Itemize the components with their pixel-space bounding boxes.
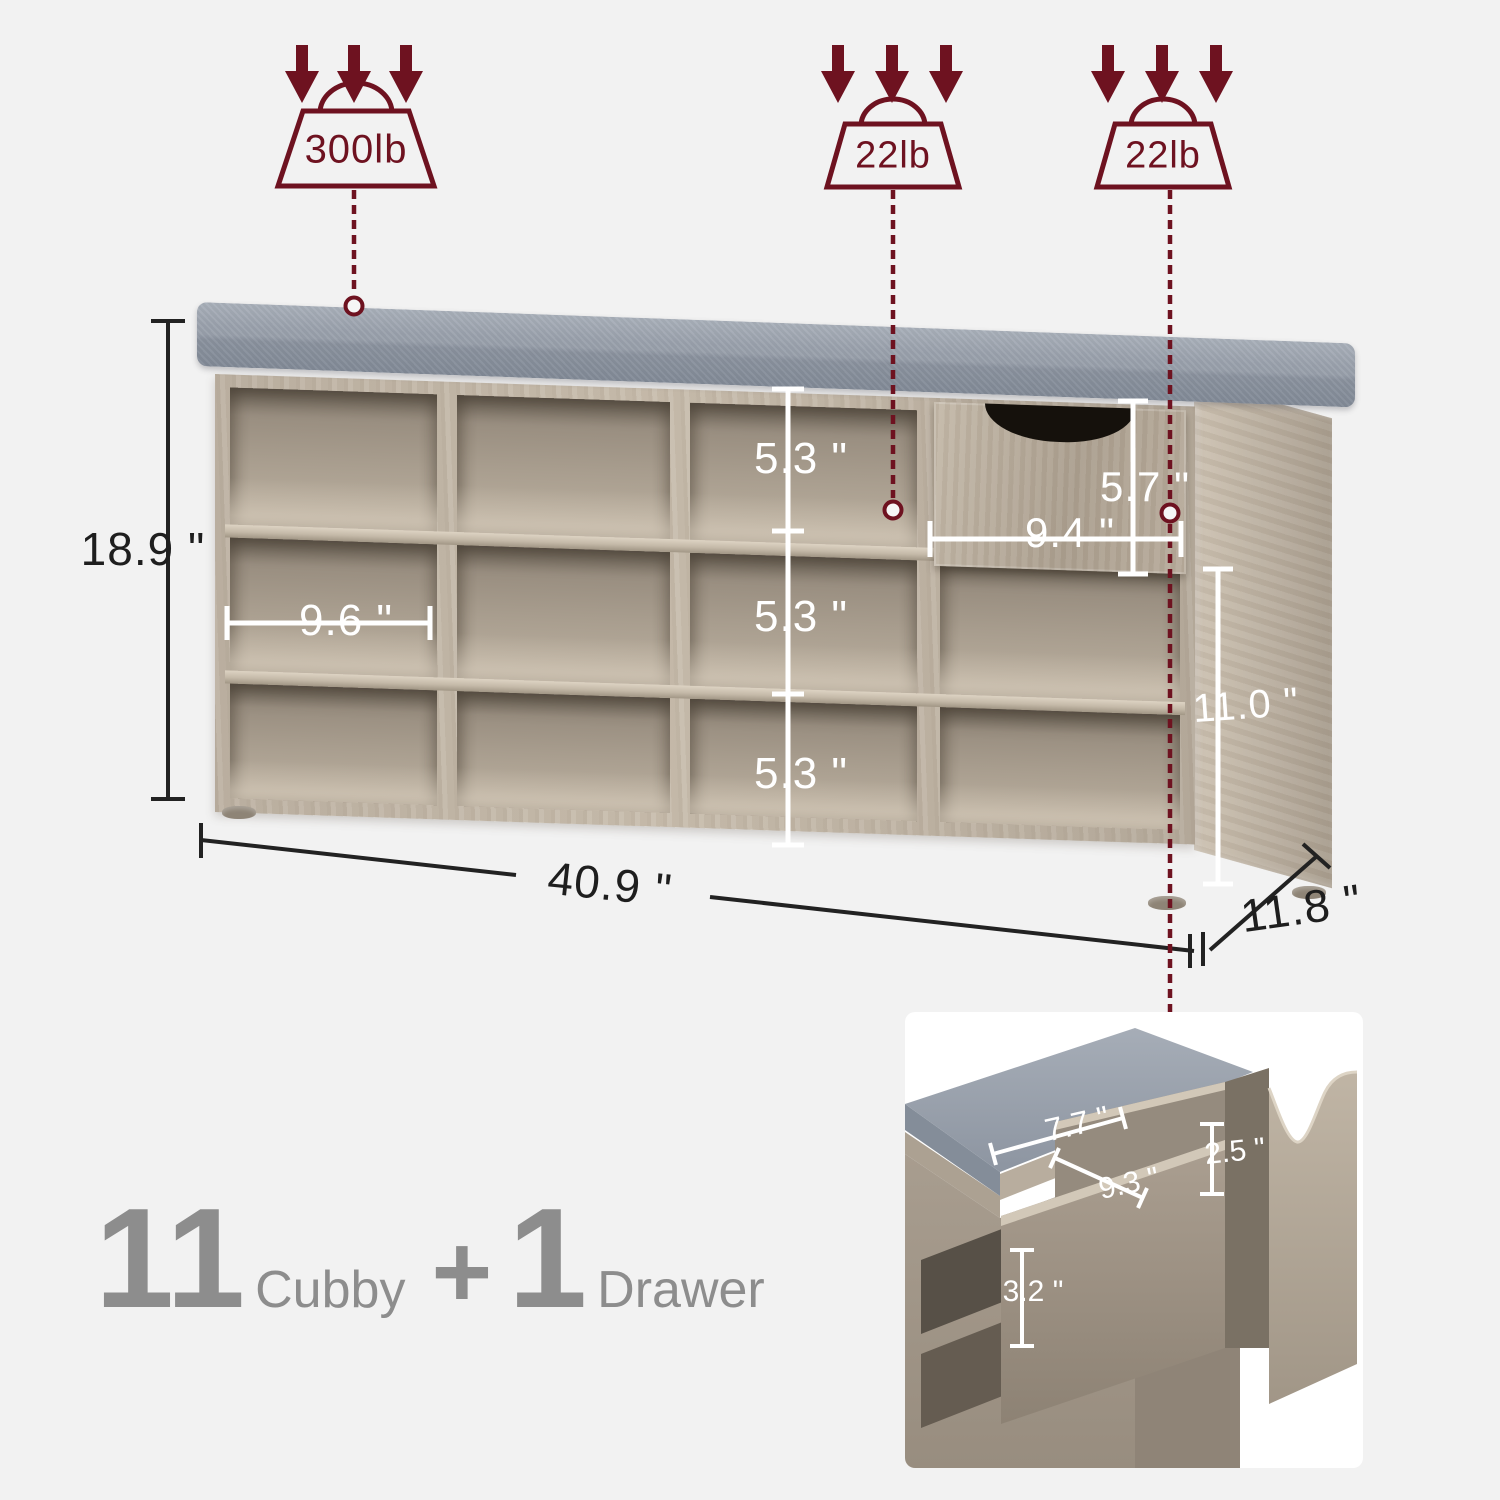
down-arrows-icon — [285, 45, 1233, 103]
weight-capacity-drawer-label: 22lb — [1125, 135, 1201, 178]
dim-drawer-front-width: 9.4 " — [1025, 509, 1115, 557]
plus-sign: + — [431, 1213, 492, 1332]
dim-cubby-height-middle: 5.3 " — [754, 592, 848, 642]
weight-capacity-seat-label: 300lb — [305, 128, 408, 173]
dim-cubby-height-bottom: 5.3 " — [754, 749, 848, 799]
leader-end-circles — [346, 298, 1179, 522]
weight-capacity-shelf-label: 22lb — [855, 135, 931, 178]
cubby-word: Cubby — [255, 1260, 405, 1320]
dim-cubby-height-top: 5.3 " — [754, 434, 848, 484]
product-dimension-diagram: 7.7 " 9.3 " 2.5 " 3.2 " — [0, 0, 1500, 1500]
dim-right-section-height: 11.0 " — [1191, 680, 1300, 732]
drawer-count: 1 — [508, 1188, 587, 1330]
drawer-word: Drawer — [597, 1260, 765, 1320]
dim-overall-height: 18.9 " — [81, 522, 206, 576]
cubby-count: 11 — [95, 1188, 245, 1330]
dim-cubby-width: 9.6 " — [299, 596, 393, 646]
feature-caption: 11 Cubby + 1 Drawer — [95, 1188, 765, 1332]
dim-drawer-front-height: 5.7 " — [1100, 463, 1190, 511]
